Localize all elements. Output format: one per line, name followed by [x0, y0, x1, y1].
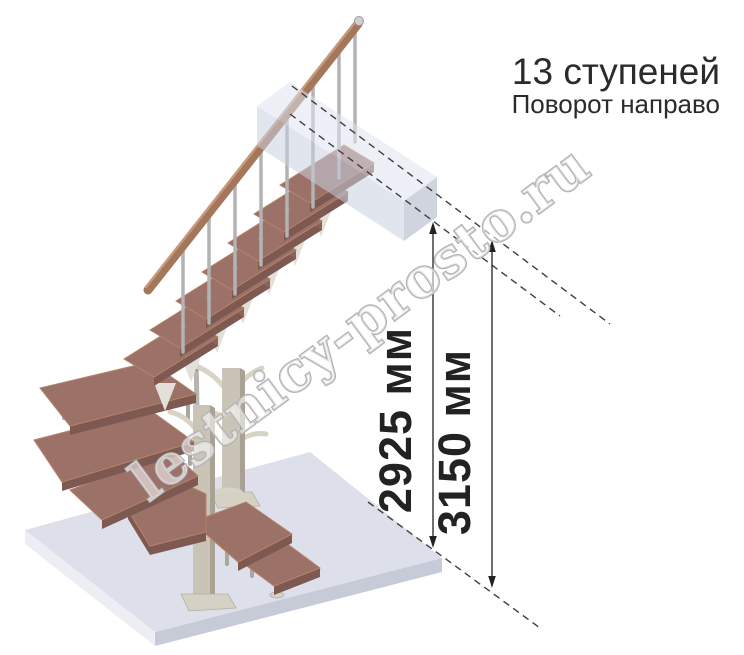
staircase-illustration: 2925 мм 3150 мм 13 ступеней Поворот напр…: [0, 0, 744, 655]
dimension-label-3150: 3150 мм: [429, 349, 480, 535]
handrail-cap: [355, 17, 364, 26]
post-base: [181, 594, 236, 611]
header: 13 ступеней Поворот направо: [512, 51, 720, 119]
dimension-label-2925: 2925 мм: [370, 327, 421, 513]
page-title: 13 ступеней: [512, 51, 720, 92]
staircase-diagram: 2925 мм 3150 мм 13 ступеней Поворот напр…: [0, 0, 744, 655]
page-subtitle: Поворот направо: [512, 89, 720, 119]
